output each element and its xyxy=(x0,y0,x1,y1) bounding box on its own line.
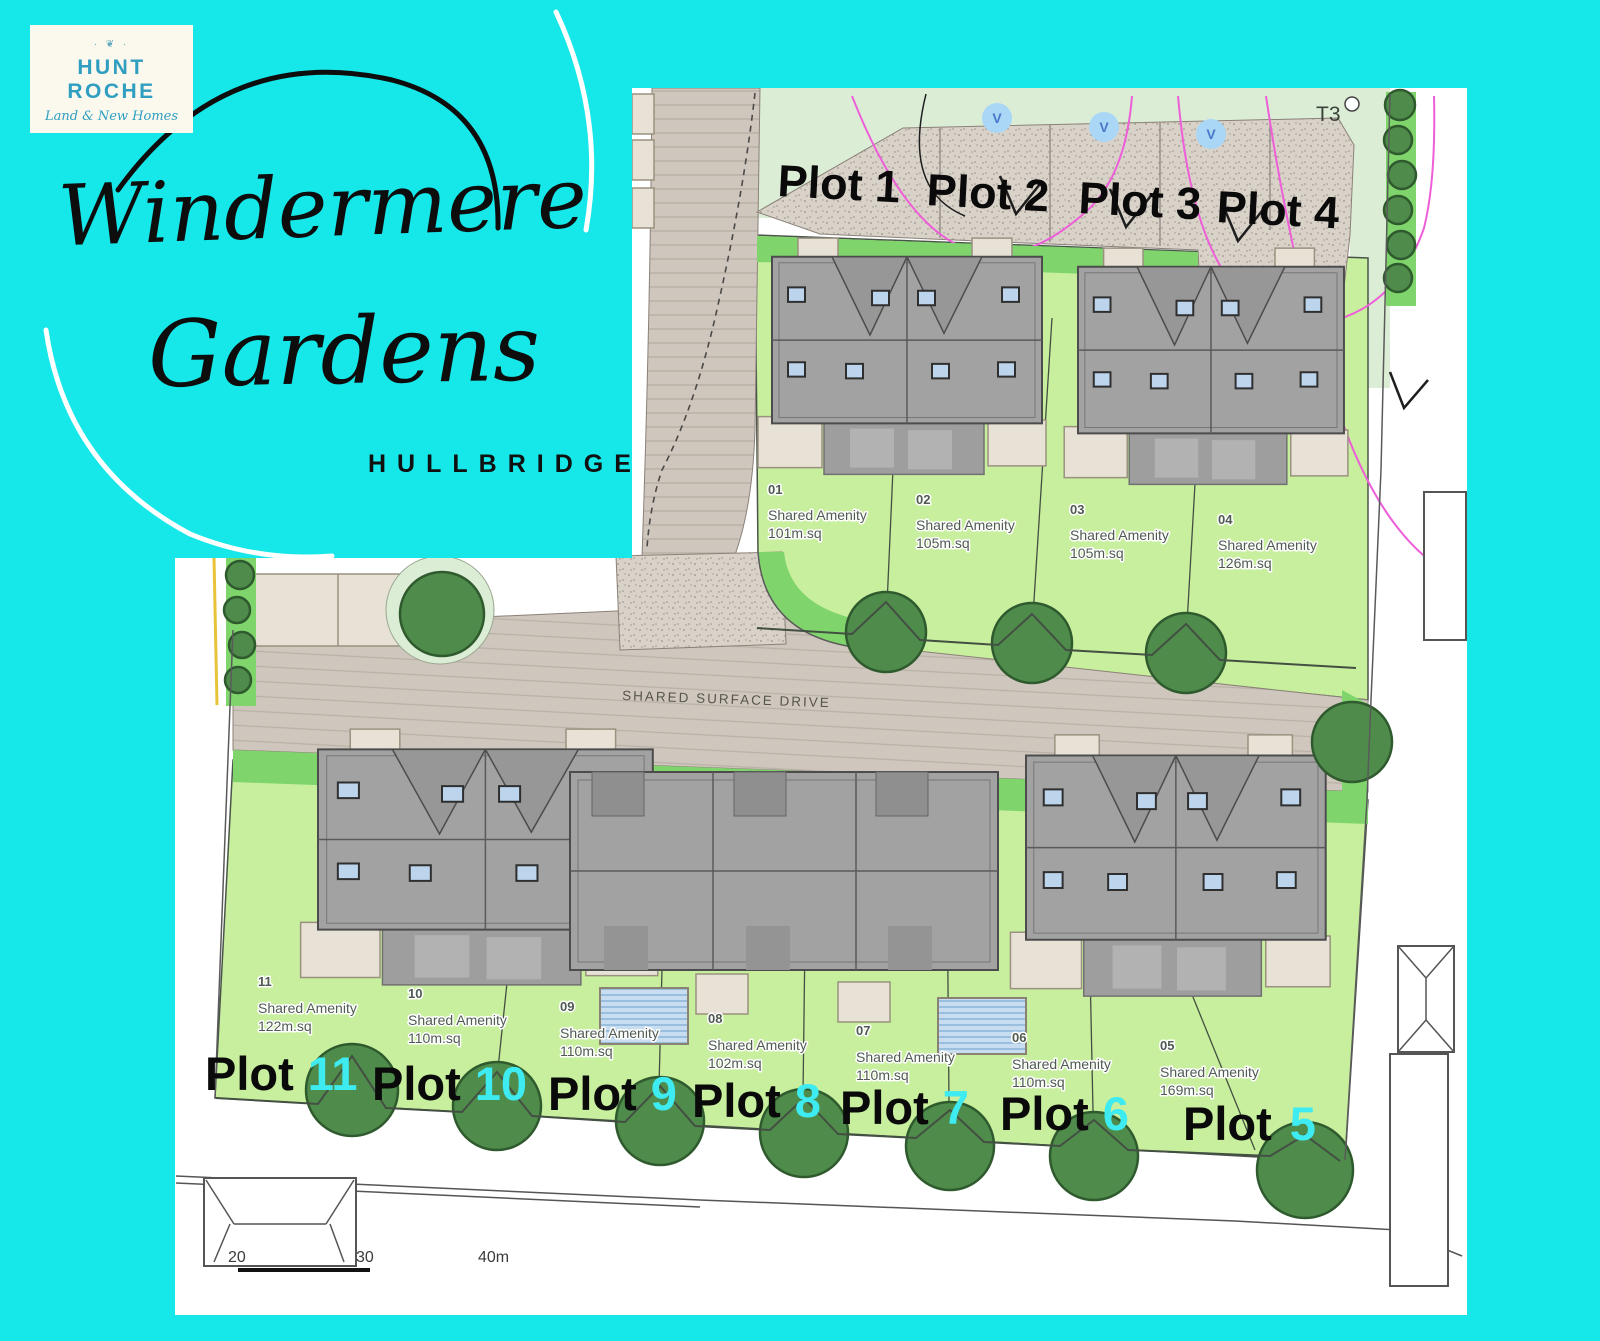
plot-9-title: Plot9 xyxy=(548,1067,677,1120)
development-location: HULLBRIDGE xyxy=(368,450,642,479)
visitor-marker-label: V xyxy=(1099,119,1109,135)
tree-icon xyxy=(400,572,484,656)
svg-text:126m.sq: 126m.sq xyxy=(1218,555,1272,571)
survey-point xyxy=(1345,97,1359,111)
svg-text:Shared Amenity: Shared Amenity xyxy=(1218,537,1317,553)
svg-text:110m.sq: 110m.sq xyxy=(408,1030,461,1046)
plot-7-title: Plot7 xyxy=(840,1081,969,1134)
hunt-roche-logo: · ❦ · HUNT ROCHE Land & New Homes xyxy=(30,25,193,133)
plot-6-title: Plot6 xyxy=(1000,1087,1129,1140)
house-plots-6-5 xyxy=(1010,735,1330,996)
logo-ornament-icon: · ❦ · xyxy=(30,39,193,50)
visitor-marker-label: V xyxy=(992,110,1002,126)
svg-text:102m.sq: 102m.sq xyxy=(708,1055,762,1071)
svg-text:110m.sq: 110m.sq xyxy=(560,1043,613,1059)
svg-text:02: 02 xyxy=(916,492,930,507)
svg-text:03: 03 xyxy=(1070,502,1084,517)
neighbour-building xyxy=(1390,1054,1448,1286)
plot-8-title: Plot8 xyxy=(692,1074,821,1127)
logo-name: HUNT ROCHE xyxy=(30,56,193,104)
svg-text:Shared Amenity: Shared Amenity xyxy=(1012,1056,1111,1072)
title-block: · ❦ · HUNT ROCHE Land & New Homes Winder… xyxy=(0,0,632,558)
svg-text:Shared Amenity: Shared Amenity xyxy=(708,1037,807,1053)
svg-text:30: 30 xyxy=(356,1249,374,1266)
logo-tagline: Land & New Homes xyxy=(30,109,193,124)
plot-11-title: Plot11 xyxy=(205,1047,357,1100)
svg-text:Shared Amenity: Shared Amenity xyxy=(1070,527,1169,543)
visitor-marker-label: V xyxy=(1206,126,1216,142)
svg-text:10: 10 xyxy=(408,986,422,1001)
glazed-canopy xyxy=(938,998,1026,1054)
plot-3-title: Plot 3 xyxy=(1077,172,1202,229)
svg-text:105m.sq: 105m.sq xyxy=(1070,545,1124,561)
development-title-line2: Gardens xyxy=(147,295,541,409)
svg-text:Shared Amenity: Shared Amenity xyxy=(768,507,867,523)
svg-text:101m.sq: 101m.sq xyxy=(768,525,822,541)
svg-text:105m.sq: 105m.sq xyxy=(916,535,970,551)
svg-text:07: 07 xyxy=(856,1023,870,1038)
neighbour-building xyxy=(204,1178,356,1266)
svg-text:06: 06 xyxy=(1012,1030,1026,1045)
house-plots-3-4 xyxy=(1064,248,1348,484)
svg-text:Shared Amenity: Shared Amenity xyxy=(1160,1064,1259,1080)
svg-text:08: 08 xyxy=(708,1011,722,1026)
svg-text:Shared Amenity: Shared Amenity xyxy=(916,517,1015,533)
svg-text:05: 05 xyxy=(1160,1038,1174,1053)
svg-text:01: 01 xyxy=(768,482,782,497)
tree-icon xyxy=(1312,702,1392,782)
svg-text:Shared Amenity: Shared Amenity xyxy=(560,1025,659,1041)
svg-text:20: 20 xyxy=(228,1249,246,1266)
svg-text:169m.sq: 169m.sq xyxy=(1160,1082,1214,1098)
plot-10-title: Plot10 xyxy=(372,1057,527,1110)
svg-text:04: 04 xyxy=(1218,512,1233,527)
svg-text:40m: 40m xyxy=(478,1249,509,1266)
svg-text:Shared Amenity: Shared Amenity xyxy=(408,1012,507,1028)
svg-text:Shared Amenity: Shared Amenity xyxy=(258,1000,357,1016)
development-title-line1: Windermere xyxy=(56,149,588,265)
svg-text:09: 09 xyxy=(560,999,574,1014)
flyer-canvas: V V V T3 SHARED SURFACE DRIVE 01 Shared … xyxy=(0,0,1600,1341)
svg-text:122m.sq: 122m.sq xyxy=(258,1018,312,1034)
plot-5-title: Plot5 xyxy=(1183,1097,1316,1150)
yellow-line xyxy=(214,558,217,705)
plot-4-title: Plot 4 xyxy=(1215,181,1340,238)
tree-tag-t3: T3 xyxy=(1316,103,1341,126)
access-road xyxy=(640,88,760,612)
neighbour-plot xyxy=(1424,492,1466,640)
house-plots-1-2 xyxy=(758,238,1046,474)
svg-text:11: 11 xyxy=(258,974,272,989)
plot-1-title: Plot 1 xyxy=(776,155,901,212)
plot-2-title: Plot 2 xyxy=(925,164,1050,221)
svg-text:Shared Amenity: Shared Amenity xyxy=(856,1049,955,1065)
